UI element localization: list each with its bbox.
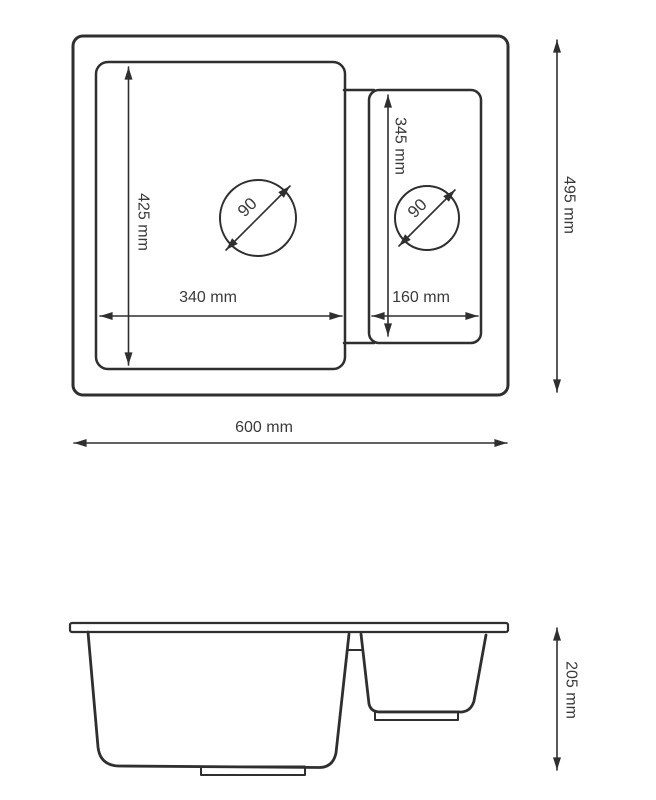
dim-label-overall-depth: 495 mm <box>560 176 577 234</box>
dim-label-sink-height: 205 mm <box>562 661 579 719</box>
dim-label-overall-width: 600 mm <box>235 419 293 436</box>
main-bowl-drain-diameter-label: 90 <box>234 194 261 221</box>
dim-label-main-bowl-depth: 425 mm <box>134 193 151 251</box>
technical-drawing-page: 90 90 425 mm 340 mm 345 mm 160 mm <box>0 0 656 800</box>
main-bowl-drain: 90 <box>220 180 296 256</box>
dim-label-main-bowl-width: 340 mm <box>179 289 237 306</box>
small-bowl-drain-diameter-line <box>399 190 455 246</box>
dim-label-small-bowl-width: 160 mm <box>392 289 450 306</box>
dimension-overall-depth: 495 mm <box>557 40 577 392</box>
main-bowl-profile <box>88 632 349 768</box>
dimension-main-bowl-width: 340 mm <box>100 289 342 316</box>
small-bowl-drain: 90 <box>395 186 459 250</box>
dim-label-small-bowl-depth: 345 mm <box>391 117 408 175</box>
top-view: 90 90 425 mm 340 mm 345 mm 160 mm <box>73 36 577 443</box>
sink-rim-profile <box>70 623 508 632</box>
sink-drawing-canvas: 90 90 425 mm 340 mm 345 mm 160 mm <box>0 0 656 800</box>
small-bowl-profile <box>361 634 486 712</box>
dimension-sink-height: 205 mm <box>557 628 579 770</box>
main-bowl-drain-diameter-line <box>226 186 290 250</box>
side-view: 205 mm <box>70 623 579 775</box>
dimension-main-bowl-depth: 425 mm <box>129 67 152 365</box>
dimension-overall-width: 600 mm <box>74 419 507 443</box>
